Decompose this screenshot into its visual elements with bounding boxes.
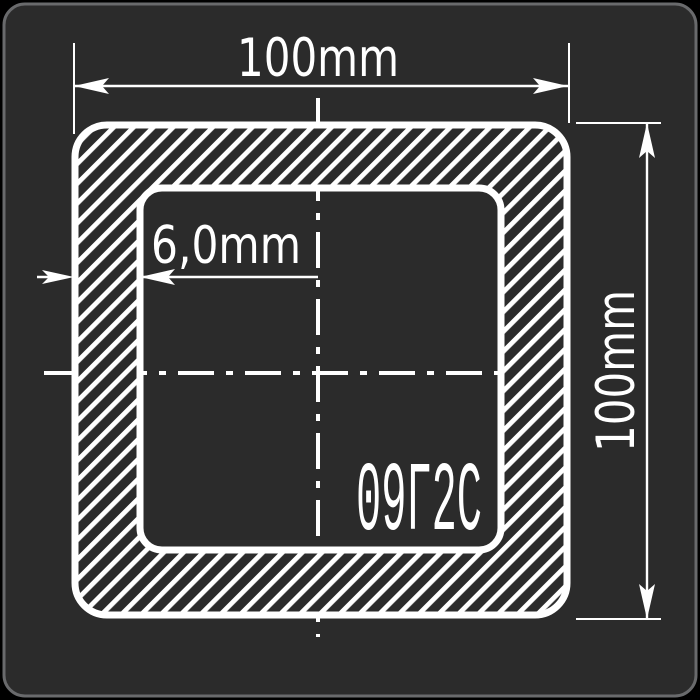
drawing-stage: 100mm 100mm 6,0mm 09Г2С bbox=[0, 0, 700, 700]
tube-drawing: 100mm 100mm 6,0mm 09Г2С bbox=[0, 0, 700, 700]
outer-height-label: 100mm bbox=[586, 290, 647, 452]
wall-thickness-label: 6,0mm bbox=[151, 216, 301, 276]
steel-grade-label: 09Г2С bbox=[356, 448, 482, 559]
outer-width-label: 100mm bbox=[237, 28, 399, 89]
